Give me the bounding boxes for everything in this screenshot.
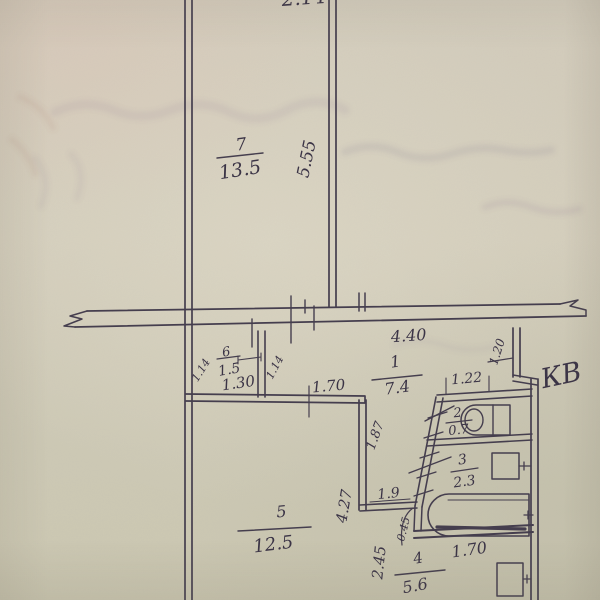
room-area: 0.7 xyxy=(448,422,471,439)
dimension-passage: 1.9 xyxy=(377,485,401,503)
floorplan-drawing: 2.14 7 13.5 5.55 4.40 6 1.5 1.14 1.14 1.… xyxy=(0,0,600,600)
room-area: 2.3 xyxy=(451,473,476,492)
room-number: 2 xyxy=(452,406,463,422)
paper-texture xyxy=(0,0,600,600)
scanned-floorplan-page: 2.14 7 13.5 5.55 4.40 6 1.5 1.14 1.14 1.… xyxy=(0,0,600,600)
dimension-kitchen-edge: 2.45 xyxy=(368,545,389,581)
room-area: 7.4 xyxy=(383,376,411,398)
dimension-corridor-width: 4.40 xyxy=(389,325,427,347)
dimension-room5-top-edge: 1.70 xyxy=(311,376,346,397)
dimension-toilet-width: 1.22 xyxy=(450,370,483,389)
room-number: 5 xyxy=(275,502,287,522)
